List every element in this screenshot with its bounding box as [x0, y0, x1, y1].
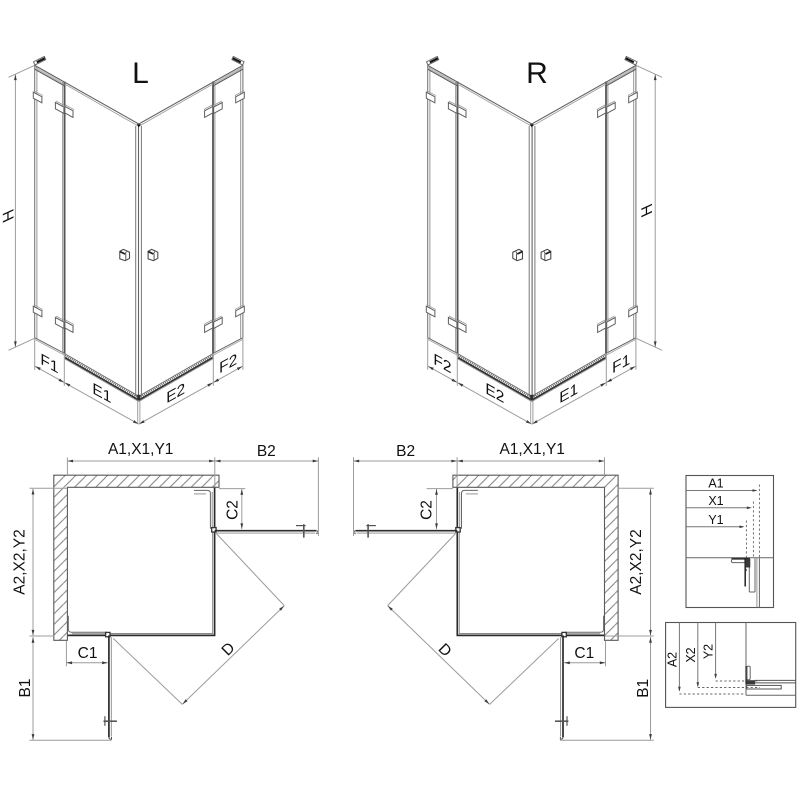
- svg-text:C1: C1: [574, 645, 594, 662]
- svg-text:R: R: [526, 57, 548, 90]
- svg-text:C2: C2: [419, 500, 436, 520]
- svg-text:A2,X2,Y2: A2,X2,Y2: [628, 529, 645, 595]
- svg-text:A2: A2: [665, 652, 679, 667]
- svg-text:A1,X1,Y1: A1,X1,Y1: [499, 441, 565, 458]
- svg-text:B2: B2: [257, 443, 276, 460]
- svg-text:B1: B1: [635, 679, 652, 698]
- svg-text:X2: X2: [684, 647, 698, 662]
- svg-text:C2: C2: [225, 500, 242, 520]
- svg-text:A1: A1: [708, 477, 723, 491]
- svg-text:Y1: Y1: [708, 513, 723, 527]
- svg-text:B2: B2: [396, 443, 415, 460]
- svg-text:X1: X1: [708, 494, 723, 508]
- svg-text:A2,X2,Y2: A2,X2,Y2: [12, 529, 29, 595]
- svg-text:A1,X1,Y1: A1,X1,Y1: [108, 441, 174, 458]
- svg-text:C1: C1: [78, 645, 98, 662]
- svg-text:L: L: [132, 57, 149, 90]
- svg-text:B1: B1: [17, 679, 34, 698]
- svg-text:Y2: Y2: [702, 644, 716, 659]
